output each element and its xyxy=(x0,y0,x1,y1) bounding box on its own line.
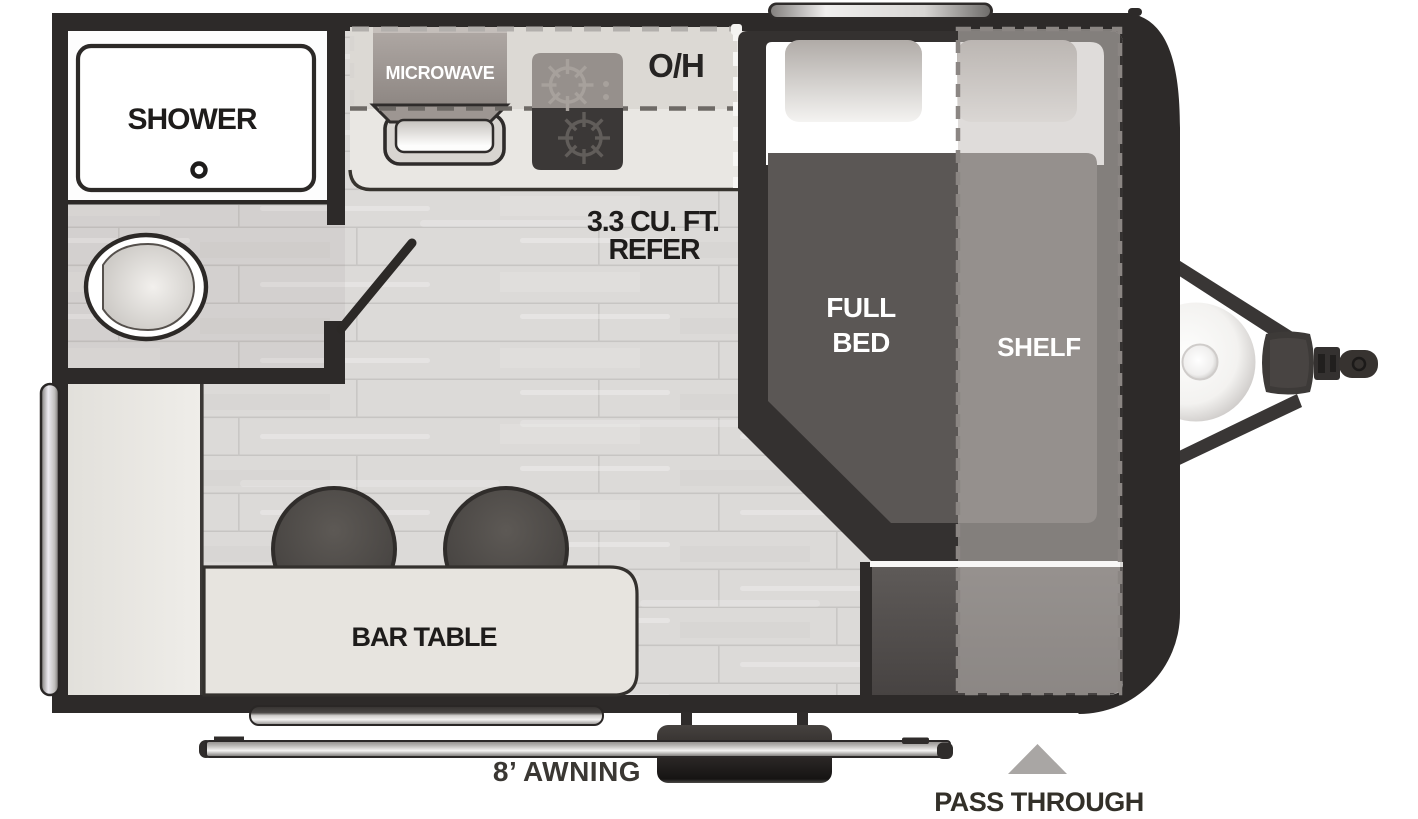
svg-text:SHELF: SHELF xyxy=(997,332,1081,362)
svg-text:SHOWER: SHOWER xyxy=(128,103,258,136)
svg-text:BED: BED xyxy=(832,327,890,358)
svg-text:REFER: REFER xyxy=(608,234,700,266)
svg-text:O/H: O/H xyxy=(648,47,704,84)
svg-text:PASS THROUGH: PASS THROUGH xyxy=(934,787,1144,817)
svg-text:8’ AWNING: 8’ AWNING xyxy=(493,756,641,787)
svg-text:BAR TABLE: BAR TABLE xyxy=(352,622,497,652)
svg-text:MICROWAVE: MICROWAVE xyxy=(386,63,495,83)
svg-text:FULL: FULL xyxy=(826,292,896,323)
